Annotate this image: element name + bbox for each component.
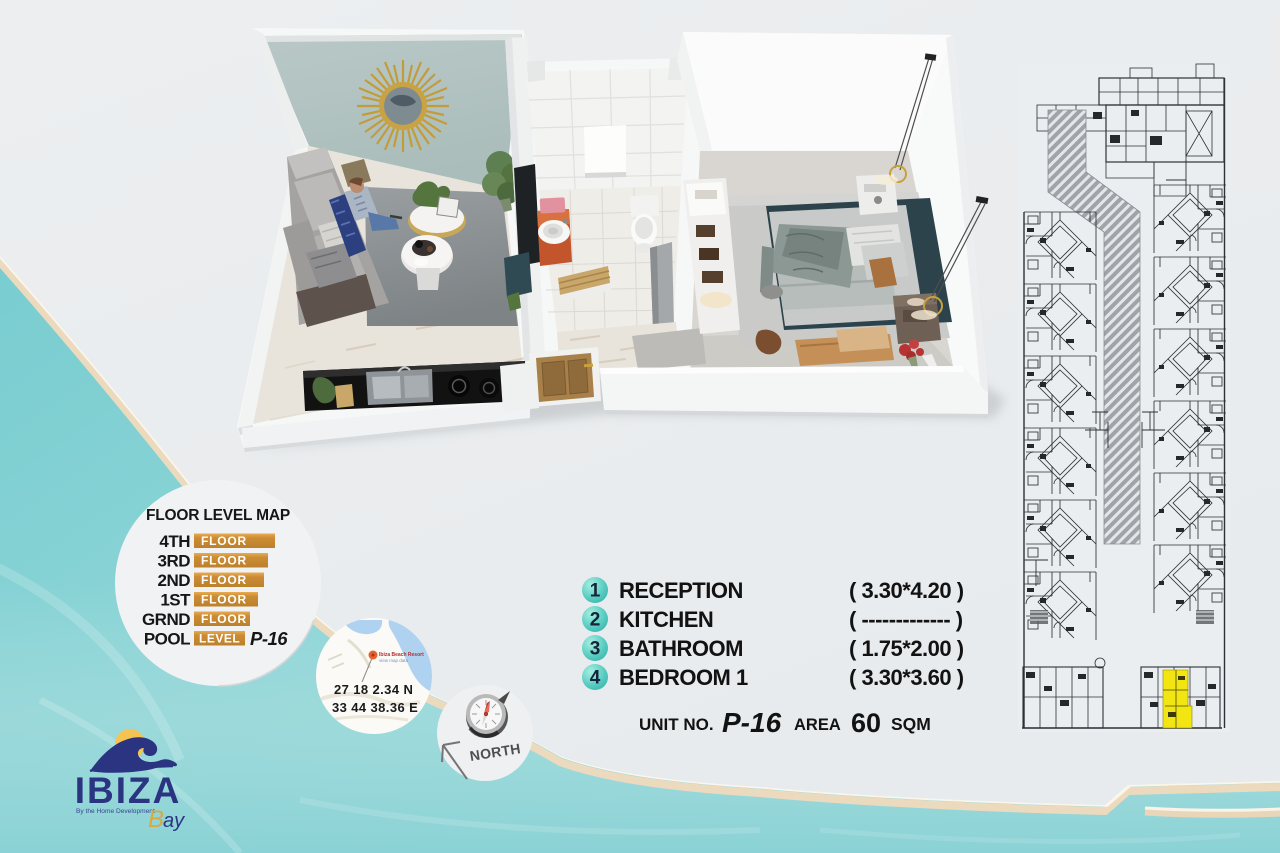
svg-text:1: 1	[590, 581, 601, 602]
svg-text:FLOOR: FLOOR	[201, 534, 247, 548]
svg-text:( 1.75*2.00 ): ( 1.75*2.00 )	[849, 636, 964, 661]
svg-text:3RD: 3RD	[157, 552, 190, 571]
svg-text:3: 3	[590, 639, 601, 660]
svg-text:( ------------- ): ( ------------- )	[849, 607, 963, 632]
svg-text:1ST: 1ST	[160, 591, 191, 610]
svg-text:view map data: view map data	[379, 658, 409, 663]
svg-text:( 3.30*4.20 ): ( 3.30*4.20 )	[849, 578, 964, 603]
svg-text:FLOOR: FLOOR	[201, 593, 247, 607]
svg-text:RECEPTION: RECEPTION	[619, 578, 743, 603]
svg-text:FLOOR: FLOOR	[201, 612, 247, 626]
svg-text:P-16: P-16	[250, 628, 288, 649]
svg-text:UNIT NO.: UNIT NO.	[639, 715, 714, 734]
svg-text:By the Home Development: By the Home Development	[76, 808, 155, 815]
svg-text:POOL: POOL	[144, 630, 190, 649]
svg-text:LEVEL: LEVEL	[199, 632, 240, 646]
svg-text:27 18 2.34 N: 27 18 2.34 N	[334, 682, 413, 697]
svg-text:4: 4	[590, 668, 601, 689]
svg-text:BATHROOM: BATHROOM	[619, 636, 743, 661]
svg-text:IBIZA: IBIZA	[75, 770, 182, 811]
svg-text:FLOOR LEVEL MAP: FLOOR LEVEL MAP	[146, 507, 290, 524]
svg-text:GRND: GRND	[142, 610, 190, 629]
svg-text:2ND: 2ND	[157, 571, 190, 590]
svg-text:P-16: P-16	[722, 707, 782, 738]
svg-text:ay: ay	[163, 810, 185, 832]
svg-text:AREA: AREA	[794, 716, 841, 734]
svg-text:BEDROOM 1: BEDROOM 1	[619, 665, 748, 690]
svg-text:FLOOR: FLOOR	[201, 554, 247, 568]
svg-text:33 44 38.36 E: 33 44 38.36 E	[332, 700, 418, 715]
svg-text:B: B	[148, 806, 164, 833]
svg-text:SQM: SQM	[891, 714, 931, 734]
svg-text:4TH: 4TH	[159, 532, 190, 551]
svg-text:KITCHEN: KITCHEN	[619, 607, 713, 632]
svg-text:FLOOR: FLOOR	[201, 573, 247, 587]
svg-text:60: 60	[851, 708, 881, 738]
svg-text:( 3.30*3.60 ): ( 3.30*3.60 )	[849, 665, 964, 690]
svg-text:2: 2	[590, 610, 601, 631]
